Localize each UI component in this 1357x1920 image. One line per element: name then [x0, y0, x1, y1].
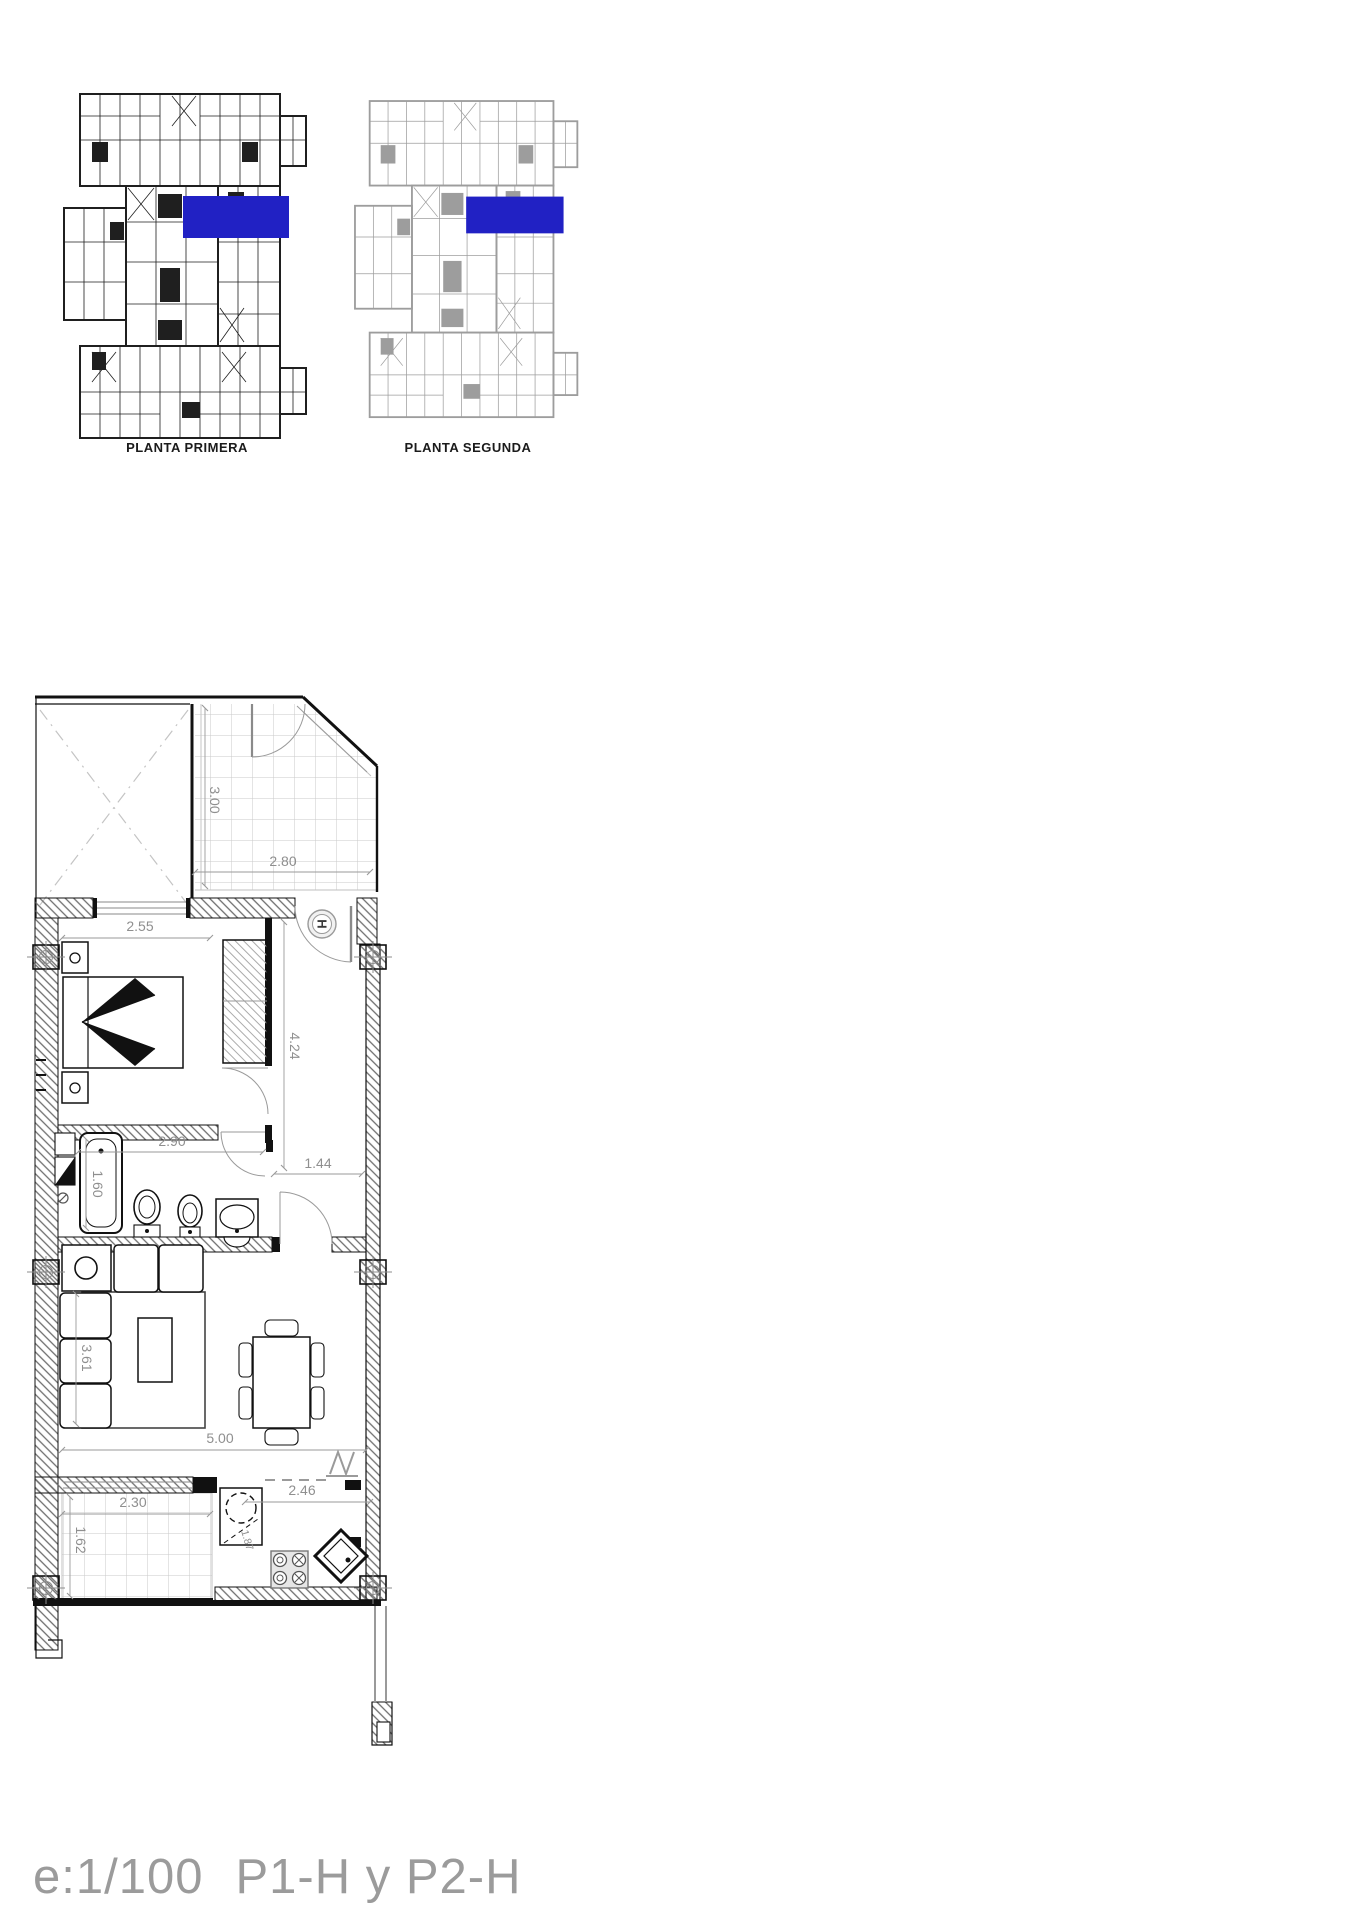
plan-label-segunda: PLANTA SEGUNDA	[348, 440, 588, 455]
stove	[271, 1551, 308, 1588]
dim-hall-width: 1.44	[304, 1155, 331, 1171]
scale-caption: e:1/100P1-H y P2-H	[33, 1849, 522, 1905]
drawing-sheet: PLANTA PRIMERA PLANTA SEGUNDA	[0, 0, 1357, 1920]
dim-living-width: 5.00	[206, 1430, 233, 1446]
dim-corridor-length: 4.24	[287, 1032, 303, 1059]
scale-text: e:1/100	[33, 1850, 204, 1904]
coffee-table	[138, 1318, 172, 1382]
nightstand	[62, 942, 88, 973]
dim-terrace-width: 2.80	[269, 853, 296, 869]
dim-living-depth: 3.61	[79, 1344, 95, 1371]
apartment-floorplan: H	[20, 690, 450, 1770]
bedroom	[62, 940, 267, 1103]
dim-terrace2-width: 2.30	[119, 1494, 146, 1510]
dim-terrace-depth: 3.00	[207, 786, 223, 813]
highlighted-unit-segunda	[466, 197, 563, 234]
dim-kitchen-width: 2.46	[288, 1482, 315, 1498]
bidet	[178, 1195, 202, 1237]
dining-table-set	[239, 1320, 324, 1445]
bathroom	[55, 1133, 258, 1247]
neighbor-area	[40, 710, 188, 905]
plan-label-primera: PLANTA PRIMERA	[62, 440, 312, 455]
window-symbol	[326, 1452, 358, 1476]
hall-marker: H	[308, 910, 336, 938]
plan-codes: P1-H y P2-H	[236, 1850, 522, 1904]
mini-plan-planta-primera	[62, 82, 312, 452]
hall-letter: H	[315, 919, 330, 928]
mini-plan-planta-segunda	[348, 90, 588, 430]
toilet	[134, 1190, 160, 1237]
dim-bathroom-width: 2.90	[158, 1133, 185, 1149]
bath-shelf	[55, 1133, 75, 1155]
dim-terrace2-depth: 1.62	[73, 1526, 89, 1553]
dim-bedroom-width: 2.55	[126, 918, 153, 934]
highlighted-unit-primera	[183, 196, 289, 238]
dim-bathtub-length: 1.60	[90, 1170, 106, 1197]
nightstand	[62, 1072, 88, 1103]
